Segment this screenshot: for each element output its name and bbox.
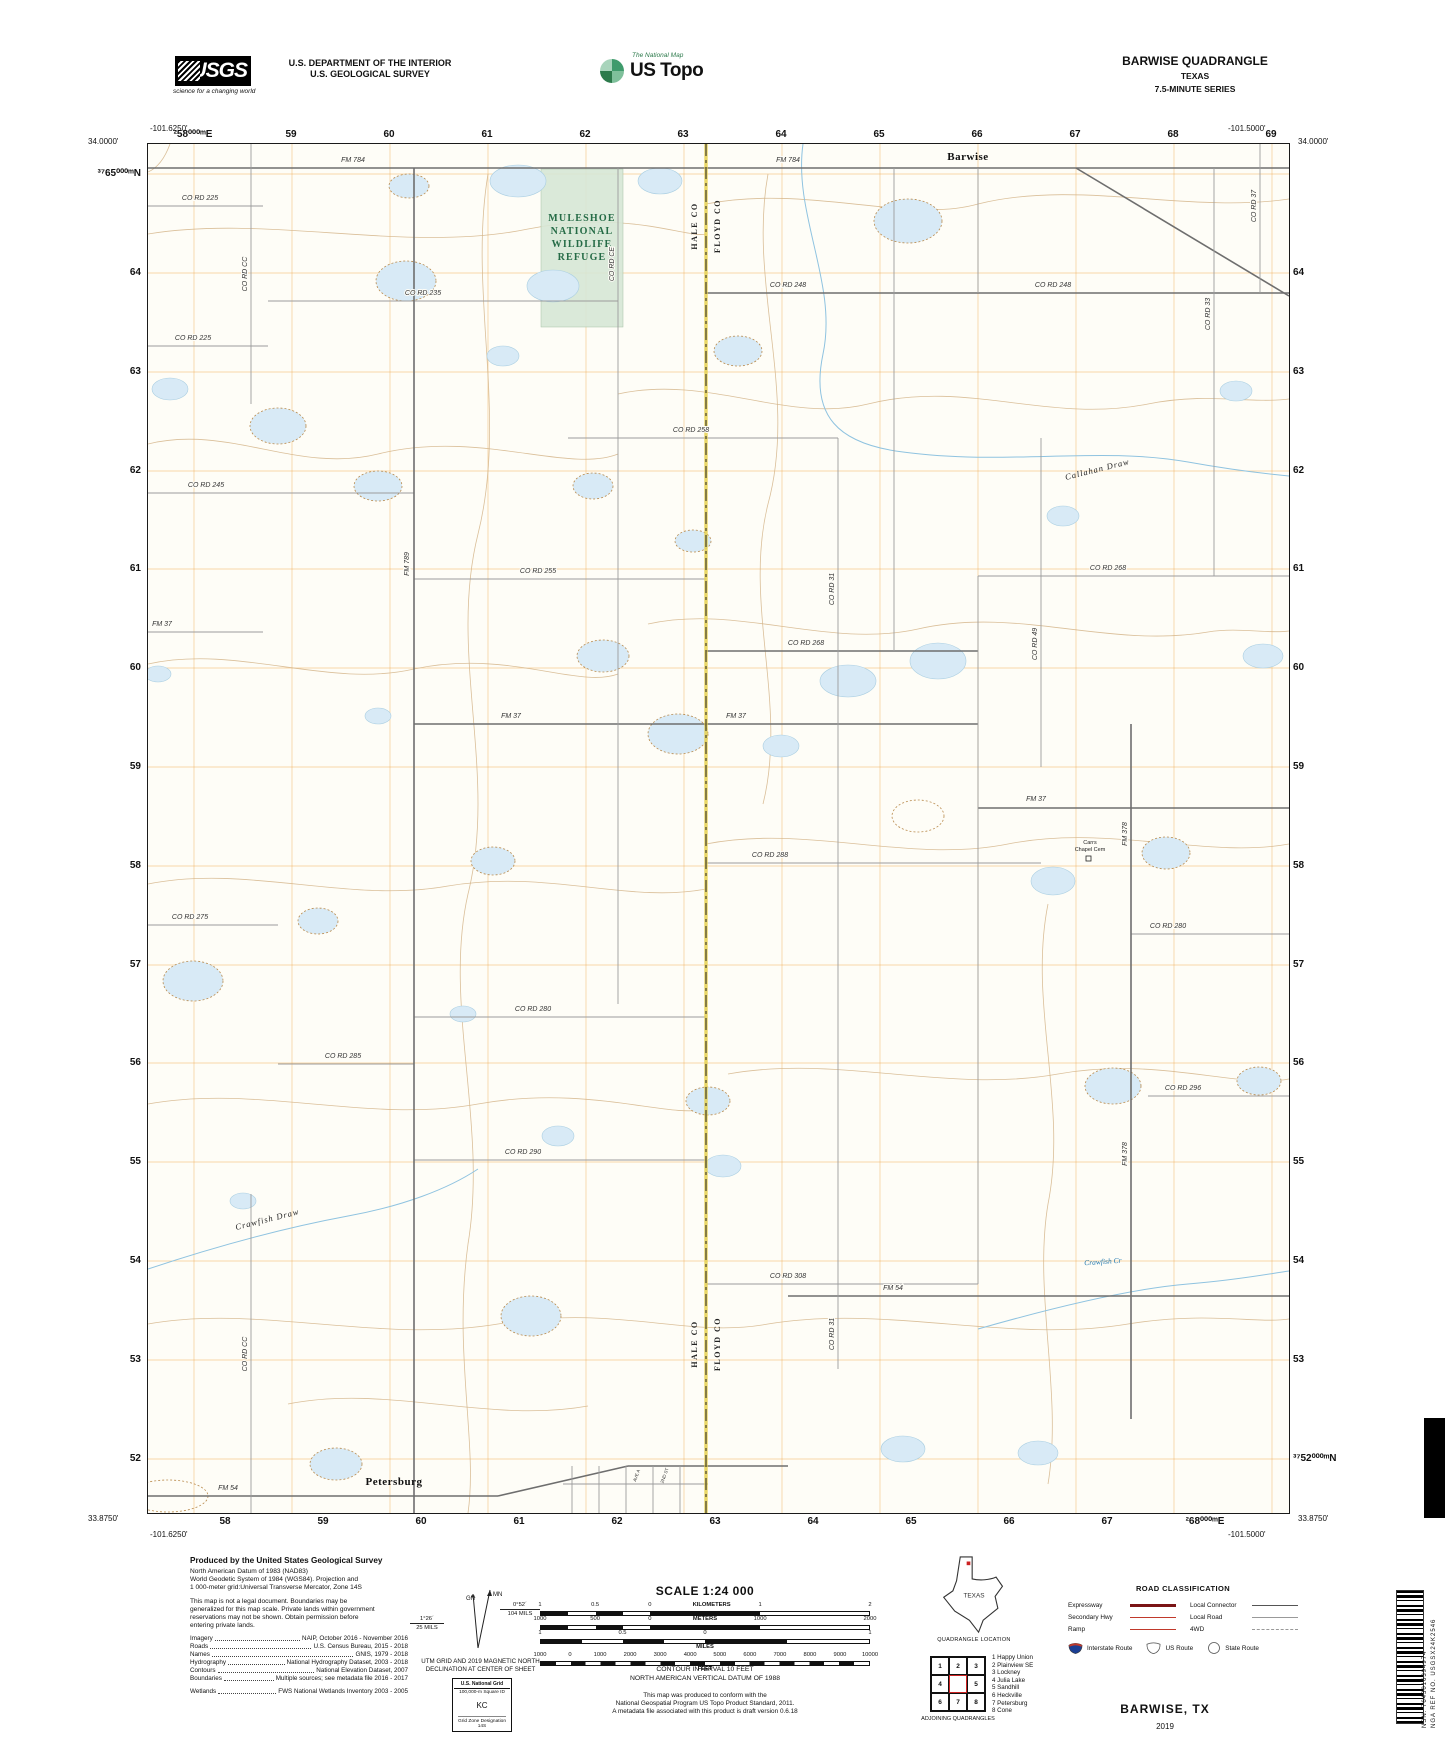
road-label: FM 378 xyxy=(1122,1142,1129,1166)
place-label: 2ND ST xyxy=(660,1467,670,1484)
road-class-row: Ramp xyxy=(1068,1623,1176,1635)
scale-title: SCALE 1:24 000 xyxy=(540,1584,870,1598)
credit-row: BoundariesMultiple sources; see metadata… xyxy=(190,1675,408,1683)
grid-label-top: 67 xyxy=(1035,129,1115,140)
stream-lines xyxy=(148,144,1289,1329)
grid-label-left: 53 xyxy=(61,1354,141,1365)
quad-location-dot xyxy=(967,1562,971,1566)
road-label: FM 37 xyxy=(1026,796,1047,803)
scale-number: 0 xyxy=(648,1602,651,1608)
playa-lake xyxy=(542,1126,574,1146)
barcode-nsn: NSN. 7643016394974 xyxy=(1422,1651,1428,1728)
cemetery-marker xyxy=(1086,856,1091,861)
adjoining-name: 1 Happy Union xyxy=(992,1654,1033,1662)
road-label: CO RD 245 xyxy=(188,482,224,489)
road-label: CO RD 225 xyxy=(175,335,211,342)
grid-label-bottom: 66 xyxy=(969,1516,1049,1527)
scale-unit: MILES xyxy=(540,1644,870,1652)
dept-line1: U.S. DEPARTMENT OF THE INTERIOR xyxy=(250,58,490,69)
usng-square-label: 100,000-m Square ID xyxy=(454,1690,510,1695)
corner-bottom-left-lon: -101.6250' xyxy=(150,1530,188,1539)
state-route-key: State Route xyxy=(1207,1641,1259,1655)
grid-label-bottom: ²68⁰⁰⁰ᵐE xyxy=(1165,1516,1245,1527)
road-label: CO RD 31 xyxy=(829,573,836,605)
grid-label-left: 54 xyxy=(61,1255,141,1266)
adjoining-quads-names: 1 Happy Union2 Plainview SE3 Lockney4 Ju… xyxy=(992,1654,1033,1715)
scale-number: 10000 xyxy=(862,1652,878,1658)
county-name-label: HALE CO xyxy=(690,1320,699,1367)
place-label: Callahan Draw xyxy=(1064,456,1131,482)
usng-square-id: KC xyxy=(454,1701,510,1710)
adjoining-name: 4 Julia Lake xyxy=(992,1677,1033,1685)
scale-number: 1 xyxy=(758,1602,761,1608)
playa-lake xyxy=(1237,1067,1281,1095)
adjoining-name: 3 Lockney xyxy=(992,1669,1033,1677)
road-class-label: Local Road xyxy=(1190,1614,1222,1621)
playa-lake xyxy=(471,847,515,875)
playa-lake xyxy=(820,665,876,697)
place-label: Barwise xyxy=(947,151,988,163)
quad-location-caption: QUADRANGLE LOCATION xyxy=(934,1637,1014,1643)
road-class-row: 4WD xyxy=(1190,1623,1298,1635)
road-label: FM 54 xyxy=(883,1285,903,1292)
place-label: Carrs xyxy=(1083,840,1097,846)
sheet-name: BARWISE, TX xyxy=(1100,1702,1230,1716)
scale-unit: KILOMETERS xyxy=(693,1602,731,1608)
grid-label-right: 53 xyxy=(1293,1354,1373,1365)
grid-label-left: 55 xyxy=(61,1156,141,1167)
us-route-shield-icon xyxy=(1146,1641,1161,1655)
road-label: CO RD 308 xyxy=(770,1273,806,1280)
corner-bottom-right-lat: 33.8750' xyxy=(1298,1514,1328,1523)
grid-label-top: 61 xyxy=(447,129,527,140)
playa-lake xyxy=(705,1155,741,1177)
national-map-label: The National Map xyxy=(632,52,760,59)
road-class-row: Local Connector xyxy=(1190,1599,1298,1611)
barcode-nga: NGA REF NO. USGSX24K2546 xyxy=(1431,1619,1437,1728)
grid-label-left: 60 xyxy=(61,662,141,673)
playa-lake xyxy=(881,1436,925,1462)
grid-label-right: 55 xyxy=(1293,1156,1373,1167)
scale-number: 3000 xyxy=(654,1652,667,1658)
grid-label-bottom: 62 xyxy=(577,1516,657,1527)
corner-bottom-right-lon: -101.5000' xyxy=(1228,1530,1266,1539)
grid-label-right: 63 xyxy=(1293,366,1373,377)
scale-number: 1000 xyxy=(534,1652,547,1658)
grid-label-top: 63 xyxy=(643,129,723,140)
map-svg: MULESHOENATIONALWILDLIFEREFUGE FM 784FM … xyxy=(148,144,1289,1513)
grid-label-bottom: 61 xyxy=(479,1516,559,1527)
scale-number: 7000 xyxy=(773,1652,786,1658)
road-label: FM 54 xyxy=(218,1485,238,1492)
playa-lake xyxy=(573,473,613,499)
credit-row: HydrographyNational Hydrography Dataset,… xyxy=(190,1659,408,1667)
grid-label-right: 60 xyxy=(1293,662,1373,673)
grid-label-top: 62 xyxy=(545,129,625,140)
county-name-label: FLOYD CO xyxy=(713,199,722,253)
road xyxy=(498,1466,628,1496)
adjoining-cell: 1 xyxy=(931,1657,949,1675)
road-label: CO RD 225 xyxy=(182,195,218,202)
grid-label-bottom: 60 xyxy=(381,1516,461,1527)
grid-label-right: 56 xyxy=(1293,1057,1373,1068)
grid-label-left: 56 xyxy=(61,1057,141,1068)
usng-box: U.S. National Grid 100,000-m Square ID K… xyxy=(452,1678,512,1732)
road-label: CO RD 268 xyxy=(788,640,824,647)
road-label: FM 784 xyxy=(776,157,800,164)
road-class-sample xyxy=(1130,1604,1176,1607)
road-label: CO RD 280 xyxy=(515,1006,551,1013)
road-label: CO RD CC xyxy=(242,1336,249,1372)
road-label: CO RD 268 xyxy=(1090,565,1126,572)
grid-label-right: 54 xyxy=(1293,1255,1373,1266)
adjoining-quads-grid: 12345678 xyxy=(930,1656,986,1712)
usgs-wave-icon xyxy=(178,61,200,81)
dept-line2: U.S. GEOLOGICAL SURVEY xyxy=(250,69,490,80)
quad-series: 7.5-MINUTE SERIES xyxy=(1060,84,1330,94)
adjoining-cell: 5 xyxy=(967,1675,985,1693)
playa-lake xyxy=(365,708,391,724)
adjoining-cell: 2 xyxy=(949,1657,967,1675)
adjoining-name: 2 Plainview SE xyxy=(992,1662,1033,1670)
scale-number: 0 xyxy=(703,1630,706,1636)
playa-lake xyxy=(527,270,579,302)
grid-label-top: 65 xyxy=(839,129,919,140)
scale-number: 8000 xyxy=(803,1652,816,1658)
scale-number: 1 xyxy=(538,1602,541,1608)
road-label: FM 37 xyxy=(501,713,522,720)
scale-number: 1 xyxy=(538,1630,541,1636)
grid-label-left: 62 xyxy=(61,465,141,476)
scale-number: 9000 xyxy=(834,1652,847,1658)
road-label: CO RD CE xyxy=(609,247,616,282)
road-label: CO RD 49 xyxy=(1032,628,1039,660)
road-label: CO RD 290 xyxy=(505,1149,541,1156)
playa-lake xyxy=(389,174,429,198)
ustopo-logo: The National Map US Topo xyxy=(600,52,760,83)
corner-bottom-left-lat: 33.8750' xyxy=(88,1514,118,1523)
corner-top-left-lon: -101.6250' xyxy=(150,124,188,133)
road-label: CO RD 33 xyxy=(1205,298,1212,330)
department-heading: U.S. DEPARTMENT OF THE INTERIOR U.S. GEO… xyxy=(250,58,490,80)
playa-lake xyxy=(487,346,519,366)
road-class-row: Secondary Hwy xyxy=(1068,1611,1176,1623)
grid-label-right: 61 xyxy=(1293,563,1373,574)
usng-zone: 14S xyxy=(454,1724,510,1729)
credit-row: ImageryNAIP, October 2016 - November 201… xyxy=(190,1635,408,1643)
road-label: FM 789 xyxy=(404,552,411,576)
county-name-label: HALE CO xyxy=(690,202,699,249)
mn-label: MN xyxy=(493,1592,502,1598)
adjoining-cell: 8 xyxy=(967,1693,985,1711)
playa-lake xyxy=(577,640,629,672)
playa-lake xyxy=(1142,837,1190,869)
gn-label: GN xyxy=(466,1596,475,1602)
grid-label-left: 57 xyxy=(61,959,141,970)
playa-lake xyxy=(1047,506,1079,526)
adjoining-cell xyxy=(949,1675,967,1693)
scale-bar-row: 1000010002000300040005000600070008000900… xyxy=(540,1652,870,1666)
playa-lake xyxy=(648,714,708,754)
grid-label-left: 64 xyxy=(61,267,141,278)
grid-label-left: 58 xyxy=(61,860,141,871)
road-label: CO RD 31 xyxy=(829,1318,836,1350)
corner-top-right-lat: 34.0000' xyxy=(1298,137,1328,146)
grid-label-bottom: 67 xyxy=(1067,1516,1147,1527)
playa-lake xyxy=(1018,1441,1058,1465)
playa-lake xyxy=(230,1193,256,1209)
road-label: CO RD CC xyxy=(242,256,249,292)
scale-number: 0 xyxy=(568,1652,571,1658)
grid-label-right: ³⁷52⁰⁰⁰ᵐN xyxy=(1293,1453,1373,1464)
scale-bar xyxy=(540,1639,870,1644)
place-label: Chapel Cem xyxy=(1075,847,1106,853)
playa-lake xyxy=(1220,381,1252,401)
ustopo-globe-icon xyxy=(600,59,624,83)
grid-label-left: 63 xyxy=(61,366,141,377)
playa-lake xyxy=(152,378,188,400)
road-class-label: Local Connector xyxy=(1190,1602,1237,1609)
quad-title-block: BARWISE QUADRANGLE TEXAS 7.5-MINUTE SERI… xyxy=(1060,54,1330,94)
grid-label-right: 62 xyxy=(1293,465,1373,476)
scale-number: 500 xyxy=(590,1616,600,1622)
quad-state: TEXAS xyxy=(1060,71,1330,81)
adjoining-name: 7 Petersburg xyxy=(992,1700,1033,1708)
playa-lake xyxy=(490,165,546,197)
road-label: CO RD 37 xyxy=(1251,189,1258,222)
playa-lake xyxy=(298,908,338,934)
credit-row: WetlandsFWS National Wetlands Inventory … xyxy=(190,1688,408,1696)
interstate-route-key: Interstate Route xyxy=(1068,1641,1132,1655)
road-class-label: Ramp xyxy=(1068,1626,1085,1633)
road-class-label: Expressway xyxy=(1068,1602,1102,1609)
texas-label: TEXAS xyxy=(963,1592,984,1599)
usgs-logo: USGS xyxy=(175,56,251,86)
road-label: CO RD 255 xyxy=(520,568,556,575)
playa-lake xyxy=(250,408,306,444)
credits-datum: North American Datum of 1983 (NAD83) Wor… xyxy=(190,1568,408,1593)
grid-label-bottom: 64 xyxy=(773,1516,853,1527)
road-class-title: ROAD CLASSIFICATION xyxy=(1068,1584,1298,1593)
texas-outline: TEXAS xyxy=(939,1556,1009,1634)
playa-lake xyxy=(354,471,402,501)
scale-number: 2000 xyxy=(864,1616,877,1622)
road-classification: ROAD CLASSIFICATION ExpresswaySecondary … xyxy=(1068,1584,1298,1655)
playa-lake xyxy=(763,735,799,757)
grid-label-right: 64 xyxy=(1293,267,1373,278)
playa-lake xyxy=(1243,644,1283,668)
road-label: CO RD 285 xyxy=(325,1053,361,1060)
grid-label-bottom: 58 xyxy=(185,1516,265,1527)
road-class-sample xyxy=(1252,1617,1298,1618)
playa-lake xyxy=(910,643,966,679)
road-class-label: 4WD xyxy=(1190,1626,1204,1633)
scale-bar-row: 10.501 xyxy=(540,1630,870,1644)
road-label: CO RD 248 xyxy=(1035,282,1071,289)
road-label: FM 784 xyxy=(341,157,365,164)
adjoining-name: 5 Sandhill xyxy=(992,1684,1033,1692)
grid-label-top: 66 xyxy=(937,129,1017,140)
scale-number: 0 xyxy=(648,1616,651,1622)
credit-row: NamesGNIS, 1979 - 2018 xyxy=(190,1651,408,1659)
scale-bar-row: 1000500010002000METERS xyxy=(540,1616,870,1630)
playa-lake xyxy=(714,336,762,366)
usgs-topo-sheet: USGS science for a changing world U.S. D… xyxy=(0,0,1445,1746)
place-label: AVE A xyxy=(632,1469,641,1483)
declination-diagram: GN MN xyxy=(440,1586,520,1656)
scale-number: 1000 xyxy=(594,1652,607,1658)
road-class-sample xyxy=(1130,1617,1176,1618)
state-route-circle-icon xyxy=(1207,1641,1221,1655)
grid-label-top: 60 xyxy=(349,129,429,140)
county-name-label: FLOYD CO xyxy=(713,1317,722,1371)
grid-label-left: 59 xyxy=(61,761,141,772)
adjoining-name: 6 Heckville xyxy=(992,1692,1033,1700)
playa-lake xyxy=(1031,867,1075,895)
scale-number: 6000 xyxy=(743,1652,756,1658)
scale-unit: METERS xyxy=(693,1616,717,1622)
road-label: CO RD 258 xyxy=(673,427,709,434)
grid-label-right: 57 xyxy=(1293,959,1373,970)
sheet-title-block: BARWISE, TX 2019 xyxy=(1100,1702,1230,1731)
scale-number: 2000 xyxy=(624,1652,637,1658)
quadrangle-location: TEXAS QUADRANGLE LOCATION xyxy=(934,1556,1014,1643)
road-label: FM 37 xyxy=(152,621,173,628)
grid-label-left: 52 xyxy=(61,1453,141,1464)
playa-lake xyxy=(638,168,682,194)
scale-bar-row: 10.5012KILOMETERS xyxy=(540,1602,870,1616)
credits-legal: This map is not a legal document. Bounda… xyxy=(190,1598,408,1631)
grid-label-left: ³⁷65⁰⁰⁰ᵐN xyxy=(61,168,141,179)
credit-row: RoadsU.S. Census Bureau, 2015 - 2018 xyxy=(190,1643,408,1651)
scale-number: 1 xyxy=(868,1630,871,1636)
conformance-note: This map was produced to conform with th… xyxy=(540,1692,870,1716)
adjoining-quads-caption: ADJOINING QUADRANGLES xyxy=(918,1716,998,1722)
playa-lake xyxy=(310,1448,362,1480)
road-label: FM 378 xyxy=(1122,822,1129,846)
playa-lake xyxy=(501,1296,561,1336)
adjoining-cell: 7 xyxy=(949,1693,967,1711)
playa-lake xyxy=(874,199,942,243)
scale-number: 4000 xyxy=(684,1652,697,1658)
road-label: CO RD 288 xyxy=(752,852,788,859)
scale-number: 1000 xyxy=(754,1616,767,1622)
grid-label-top: 64 xyxy=(741,129,821,140)
playa-lake xyxy=(686,1087,730,1115)
road-class-row: Local Road xyxy=(1190,1611,1298,1623)
credits-title: Produced by the United States Geological… xyxy=(190,1556,408,1565)
playa-lake xyxy=(163,961,223,1001)
scale-number: 5000 xyxy=(713,1652,726,1658)
grid-label-bottom: 59 xyxy=(283,1516,363,1527)
declination-caption: UTM GRID AND 2019 MAGNETIC NORTH DECLINA… xyxy=(408,1658,553,1673)
road-label: CO RD 296 xyxy=(1165,1085,1201,1092)
scale-number: 0.5 xyxy=(618,1630,626,1636)
interstate-shield-icon xyxy=(1068,1641,1083,1655)
grid-label-right: 58 xyxy=(1293,860,1373,871)
road-class-sample xyxy=(1252,1605,1298,1606)
scale-number: 0.5 xyxy=(591,1602,599,1608)
contour-note: CONTOUR INTERVAL 10 FEET NORTH AMERICAN … xyxy=(540,1666,870,1683)
road-label: CO RD 235 xyxy=(405,290,441,297)
place-label: Crawfish Cr xyxy=(1084,1256,1122,1268)
road-label: CO RD 275 xyxy=(172,914,208,921)
grid-label-right: 59 xyxy=(1293,761,1373,772)
ustopo-label: US Topo xyxy=(630,60,703,82)
playa-lake xyxy=(1085,1068,1141,1104)
usng-header: U.S. National Grid xyxy=(454,1681,510,1689)
place-label: Petersburg xyxy=(366,1476,423,1488)
credit-row: ContoursNational Elevation Dataset, 2007 xyxy=(190,1667,408,1675)
map-canvas: MULESHOENATIONALWILDLIFEREFUGE FM 784FM … xyxy=(147,143,1290,1514)
sheet-year: 2019 xyxy=(1100,1722,1230,1731)
adjoining-cell: 3 xyxy=(967,1657,985,1675)
road-label: CO RD 248 xyxy=(770,282,806,289)
barcode xyxy=(1396,1590,1424,1724)
road-label: CO RD 280 xyxy=(1150,923,1186,930)
corner-top-left-lat: 34.0000' xyxy=(88,137,118,146)
grid-label-top: 59 xyxy=(251,129,331,140)
production-credits: Produced by the United States Geological… xyxy=(190,1556,408,1696)
grid-label-bottom: 65 xyxy=(871,1516,951,1527)
sheet-edge-bar xyxy=(1424,1418,1445,1518)
playa-lake xyxy=(892,800,944,832)
quad-title: BARWISE QUADRANGLE xyxy=(1060,54,1330,68)
grid-label-top: 68 xyxy=(1133,129,1213,140)
usgs-tagline: science for a changing world xyxy=(173,88,255,95)
us-route-key: US Route xyxy=(1146,1641,1193,1655)
scale-number: 2 xyxy=(868,1602,871,1608)
playa-lake xyxy=(450,1006,476,1022)
scale-number: 1000 xyxy=(534,1616,547,1622)
road xyxy=(1076,168,1289,296)
grid-label-bottom: 63 xyxy=(675,1516,755,1527)
grid-label-left: 61 xyxy=(61,563,141,574)
road-class-label: Secondary Hwy xyxy=(1068,1614,1113,1621)
playa-lake xyxy=(148,666,171,682)
adjoining-cell: 4 xyxy=(931,1675,949,1693)
adjoining-name: 8 Cone xyxy=(992,1707,1033,1715)
road-class-sample xyxy=(1252,1629,1298,1630)
adjoining-cell: 6 xyxy=(931,1693,949,1711)
corner-top-right-lon: -101.5000' xyxy=(1228,124,1266,133)
road-label: FM 37 xyxy=(726,713,747,720)
scale-block: SCALE 1:24 000 10.5012KILOMETERS10005000… xyxy=(540,1584,870,1674)
road-class-row: Expressway xyxy=(1068,1599,1176,1611)
gn-declination: 1°26´ 25 MILS xyxy=(410,1616,444,1632)
road-class-sample xyxy=(1130,1629,1176,1630)
